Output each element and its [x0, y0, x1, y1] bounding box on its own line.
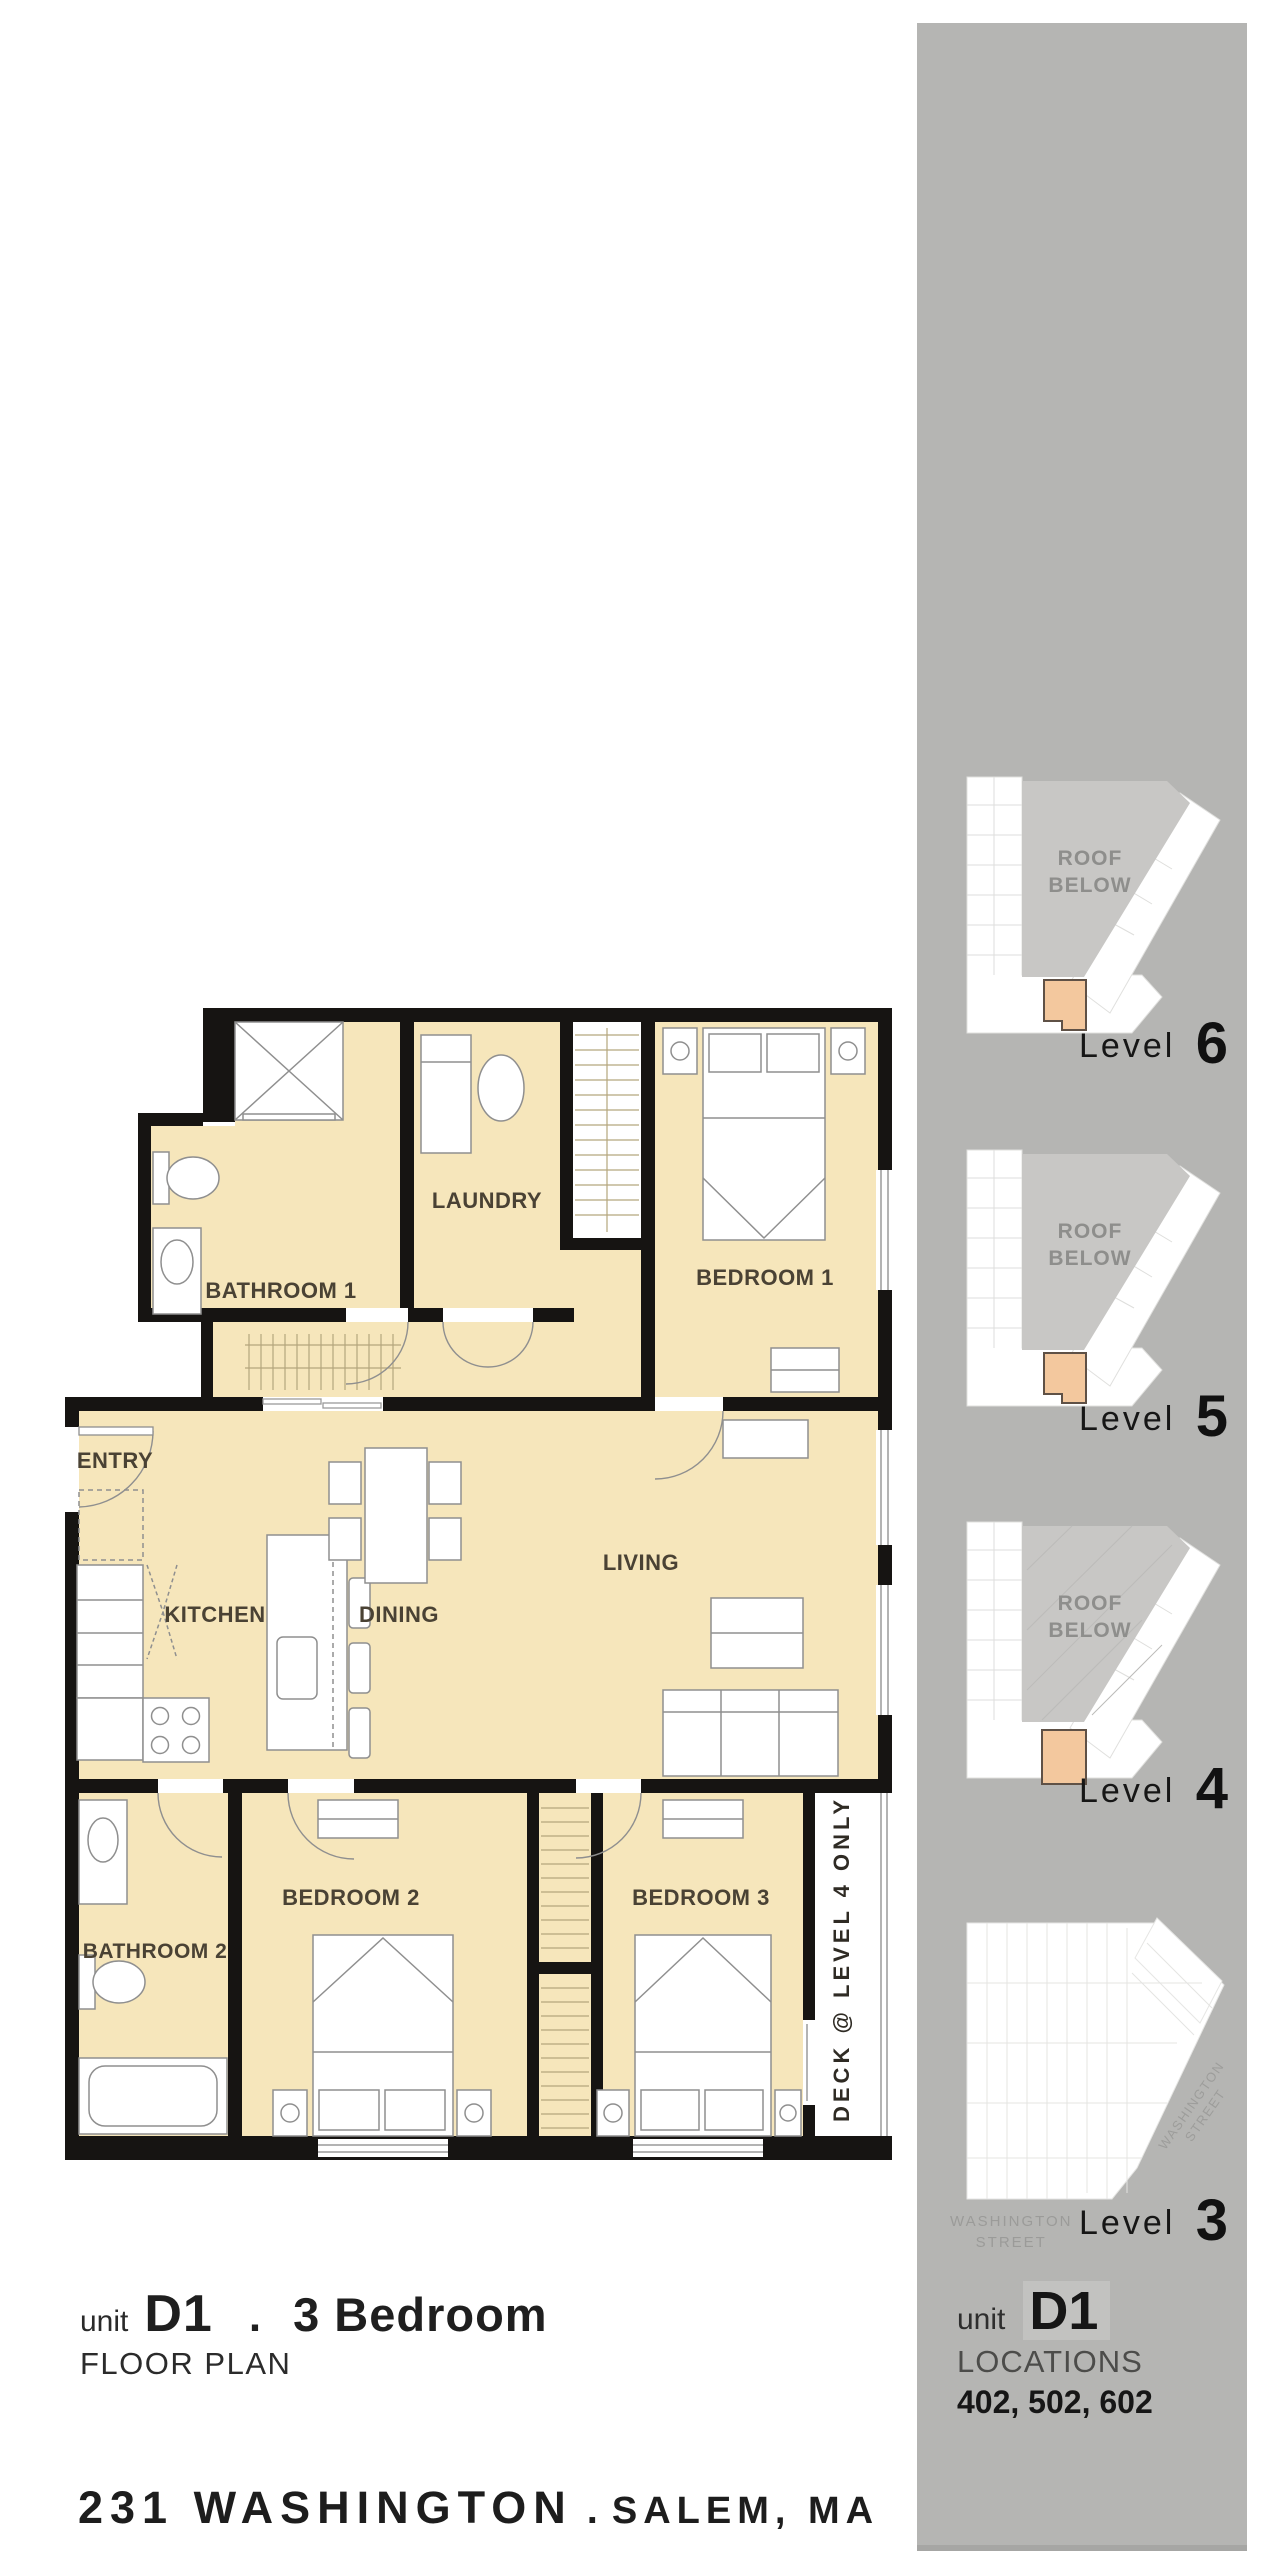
shower	[235, 1022, 343, 1120]
locations-values: 402, 502, 602	[957, 2384, 1153, 2421]
level-word: Level	[1079, 1027, 1175, 1065]
kitchen-stove	[143, 1698, 209, 1762]
street-label-bottom: WASHINGTON STREET	[950, 2211, 1073, 2255]
label-deck-note: DECK @ LEVEL 4 ONLY	[829, 1796, 854, 2122]
bedroom1-dresser	[771, 1348, 839, 1392]
title-unit-type: 3 Bedroom	[293, 2287, 548, 2342]
unit-row: unit D1	[957, 2281, 1153, 2340]
street-bottom-line2: STREET	[950, 2232, 1073, 2254]
label-entry: ENTRY	[77, 1448, 153, 1473]
level-3-diagram: WASHINGTON STREET WASHINGTON STREET Leve…	[932, 1903, 1232, 2254]
level-number: 6	[1196, 1011, 1228, 1076]
unit-label: unit	[957, 2303, 1005, 2337]
floor-plan-drawing: BATHROOM 1 LAUNDRY BEDROOM 1 ENTRY KITCH…	[63, 1000, 893, 2165]
level-3-label: Level 3	[1079, 2187, 1232, 2254]
label-bedroom2: BEDROOM 2	[282, 1885, 420, 1910]
bedroom3-dresser	[663, 1800, 743, 1838]
closet-slider	[263, 1398, 383, 1410]
level-4-plan: ROOF BELOW	[932, 1510, 1232, 1795]
label-living: LIVING	[603, 1550, 679, 1575]
location-sidebar: ROOF BELOW Level 6 ROOF BE	[917, 23, 1247, 2551]
label-kitchen: KITCHEN	[164, 1602, 265, 1627]
floor-plan: BATHROOM 1 LAUNDRY BEDROOM 1 ENTRY KITCH…	[63, 1000, 893, 2165]
label-bedroom3: BEDROOM 3	[632, 1885, 770, 1910]
level-word: Level	[1079, 2204, 1175, 2242]
level-word: Level	[1079, 1772, 1175, 1810]
label-laundry: LAUNDRY	[432, 1188, 542, 1213]
level-number: 4	[1196, 1756, 1228, 1821]
living-coffee-table	[711, 1598, 803, 1668]
label-bathroom2: BATHROOM 2	[83, 1940, 228, 1963]
label-bedroom1: BEDROOM 1	[696, 1265, 834, 1290]
title-unit-code: D1	[144, 2284, 212, 2344]
roof-below-text-1: ROOF	[1058, 1592, 1123, 1615]
title-block: unit D1 . 3 Bedroom FLOOR PLAN	[80, 2284, 548, 2382]
roof-below-text-2: BELOW	[1048, 1619, 1131, 1642]
title-subtitle: FLOOR PLAN	[80, 2346, 548, 2382]
level-3-plan: WASHINGTON STREET	[932, 1903, 1232, 2213]
level-5-plan: ROOF BELOW	[932, 1138, 1232, 1423]
level-5-diagram: ROOF BELOW Level 5	[932, 1138, 1232, 1450]
title-row: unit D1 . 3 Bedroom	[80, 2284, 548, 2344]
entry-door-leaf	[79, 1427, 153, 1435]
label-dining: DINING	[359, 1602, 439, 1627]
level-number: 5	[1196, 1384, 1228, 1449]
unit-code: D1	[1023, 2281, 1110, 2340]
street-bottom-line1: WASHINGTON	[950, 2211, 1073, 2233]
level-word: Level	[1079, 1400, 1175, 1438]
level-6-plan: ROOF BELOW	[932, 765, 1232, 1050]
living-sofa	[663, 1690, 838, 1776]
level-6-diagram: ROOF BELOW Level 6	[932, 765, 1232, 1077]
label-bathroom1: BATHROOM 1	[205, 1278, 356, 1303]
roof-below-text-1: ROOF	[1058, 847, 1123, 870]
roof-below-text-1: ROOF	[1058, 1220, 1123, 1243]
bathroom2-vanity	[79, 1800, 127, 1904]
locations-label: LOCATIONS	[957, 2344, 1153, 2380]
bedroom2-dresser	[318, 1800, 398, 1838]
level-6-label: Level 6	[932, 1010, 1232, 1077]
level-4-diagram: ROOF BELOW Level 4	[932, 1510, 1232, 1822]
roof-below-text-2: BELOW	[1048, 874, 1131, 897]
title-unit-label: unit	[80, 2305, 128, 2339]
bathroom2-tub	[79, 2058, 227, 2134]
level-number: 3	[1196, 2188, 1228, 2253]
address-separator: .	[587, 2488, 598, 2533]
address-street: 231 WASHINGTON	[78, 2482, 573, 2534]
level-3-footer: WASHINGTON STREET Level 3	[932, 2187, 1232, 2254]
title-separator: .	[249, 2292, 261, 2342]
roof-below-text-2: BELOW	[1048, 1247, 1131, 1270]
address-line: 231 WASHINGTON . SALEM, MA	[78, 2482, 879, 2534]
level-4-label: Level 4	[932, 1755, 1232, 1822]
unit-locations-block: unit D1 LOCATIONS 402, 502, 602	[957, 2281, 1153, 2421]
living-tv-stand	[723, 1420, 808, 1458]
level-5-label: Level 5	[932, 1383, 1232, 1450]
address-city: SALEM, MA	[612, 2490, 879, 2533]
bathroom1-vanity	[153, 1228, 201, 1314]
